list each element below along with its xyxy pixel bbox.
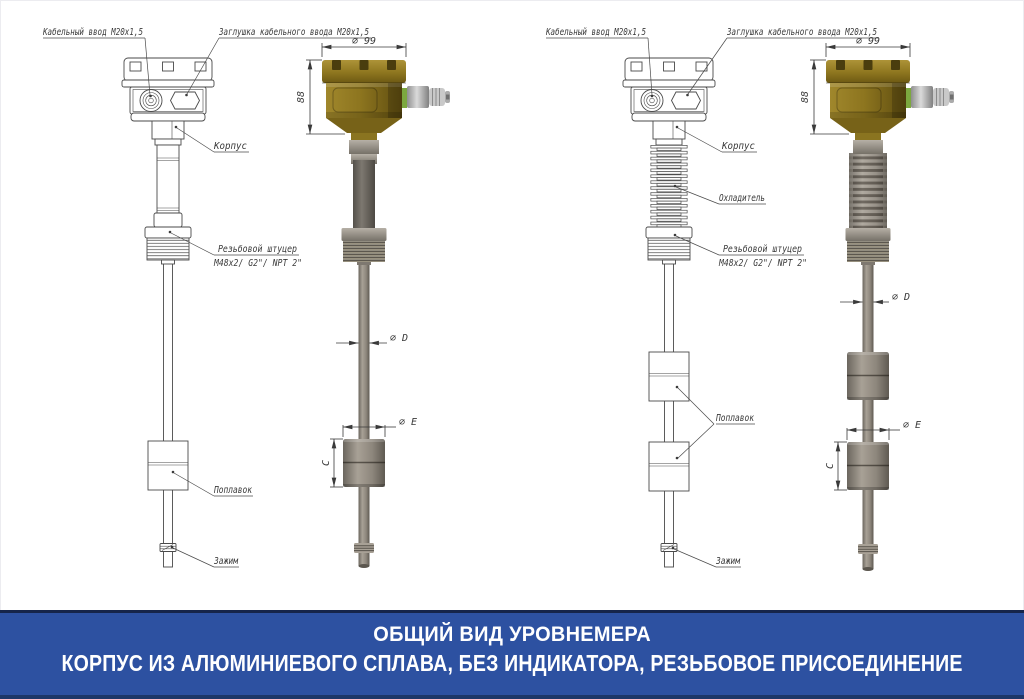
callout-clamp-text: Зажим: [213, 556, 238, 567]
dim-head-diameter: ⌀ 99: [826, 36, 910, 57]
callout-thread-fitting-text2: M48x2/ G2"/ NPT 2": [718, 258, 807, 269]
callout-clamp: Зажим: [672, 547, 741, 567]
float-upper: [847, 352, 889, 400]
probe: [863, 263, 874, 569]
callout-cable-plug-text: Заглушка кабельного ввода M20x1,5: [726, 27, 877, 38]
dim-probe-diameter-text: ⌀ D: [390, 333, 408, 344]
dim-float-height-text: C: [825, 463, 836, 469]
technical-drawing: Кабельный ввод M20x1,5 Заглушка кабельно…: [0, 0, 1024, 610]
banner-title: ОБЩИЙ ВИД УРОВНЕМЕРА: [373, 622, 651, 647]
clamp: [661, 544, 677, 552]
float-lower: [649, 442, 689, 491]
figure-basic-line-drawing: Кабельный ввод M20x1,5 Заглушка кабельно…: [42, 27, 371, 567]
thread-fitting: [145, 227, 191, 264]
drawing-sheet: Кабельный ввод M20x1,5 Заглушка кабельно…: [0, 0, 1024, 699]
thread-fitting: [342, 228, 387, 265]
dim-head-height-text: 88: [296, 91, 307, 103]
callout-thread-fitting-text1: Резьбовой штуцер: [218, 244, 297, 255]
float: [148, 441, 188, 490]
cooler-fins: [849, 153, 887, 229]
float-lower: [847, 442, 889, 490]
dim-head-diameter-text: ⌀ 99: [352, 36, 376, 47]
callout-thread-fitting: Резьбовой штуцер M48x2/ G2"/ NPT 2": [674, 234, 807, 269]
neck: [353, 160, 375, 228]
probe: [164, 260, 173, 567]
callout-thread-fitting-text2: M48x2/ G2"/ NPT 2": [213, 258, 302, 269]
clamp: [160, 544, 176, 552]
dim-probe-diameter-text: ⌀ D: [892, 292, 910, 303]
callout-housing-text: Корпус: [721, 141, 755, 152]
title-banner: ОБЩИЙ ВИД УРОВНЕМЕРА КОРПУС ИЗ АЛЮМИНИЕВ…: [0, 610, 1024, 699]
dim-float-diameter-text: ⌀ E: [903, 420, 921, 431]
figure-cooled-render: ⌀ 99 88 ⌀ D ⌀ E C: [800, 36, 954, 571]
float-upper: [649, 352, 689, 401]
probe: [359, 263, 370, 566]
thread-fitting: [846, 228, 891, 265]
dim-probe-diameter: ⌀ D: [336, 333, 408, 344]
cooler-fins: [651, 145, 688, 228]
callout-housing: Корпус: [175, 126, 249, 152]
dim-float-height-text: C: [321, 460, 332, 466]
dim-head-diameter: ⌀ 99: [322, 36, 406, 57]
probe-tip: [863, 567, 874, 571]
dim-float-height: C: [321, 439, 343, 487]
sensor-head: [322, 60, 450, 154]
thread-fitting: [646, 227, 692, 264]
callout-float-text: Поплавок: [715, 413, 754, 424]
neck-tube: [154, 145, 182, 227]
dim-probe-diameter: ⌀ D: [840, 292, 910, 303]
callout-cable-plug-text: Заглушка кабельного ввода M20x1,5: [218, 27, 369, 38]
callout-thread-fitting-text1: Резьбовой штуцер: [723, 244, 802, 255]
callout-housing: Корпус: [676, 126, 757, 152]
probe-tip: [359, 564, 370, 568]
banner-subtitle: КОРПУС ИЗ АЛЮМИНИЕВОГО СПЛАВА, БЕЗ ИНДИК…: [61, 647, 962, 680]
sensor-head: [623, 58, 715, 145]
dim-float-diameter: ⌀ E: [847, 420, 921, 440]
dim-float-height: C: [825, 442, 847, 490]
float: [343, 439, 385, 487]
callout-cable-entry-text: Кабельный ввод M20x1,5: [545, 27, 646, 38]
callout-float-text: Поплавок: [213, 485, 252, 496]
dim-float-diameter: ⌀ E: [343, 417, 417, 437]
probe: [665, 260, 674, 567]
figure-cooled-line-drawing: Кабельный ввод M20x1,5 Заглушка кабельно…: [545, 27, 879, 567]
callout-cooler-text: Охладитель: [719, 193, 765, 204]
callout-cooler: Охладитель: [674, 185, 766, 204]
clamp: [858, 544, 878, 554]
callout-clamp-text: Зажим: [715, 556, 740, 567]
callout-clamp: Зажим: [171, 546, 239, 567]
callout-cable-entry-text: Кабельный ввод M20x1,5: [42, 27, 143, 38]
figure-basic-render: ⌀ 99 88 ⌀ D ⌀ E C: [296, 36, 450, 568]
clamp: [354, 543, 374, 553]
callout-housing-text: Корпус: [213, 141, 247, 152]
sensor-head: [826, 60, 954, 154]
dim-head-height-text: 88: [800, 91, 811, 103]
dim-float-diameter-text: ⌀ E: [399, 417, 417, 428]
dim-head-diameter-text: ⌀ 99: [856, 36, 880, 47]
